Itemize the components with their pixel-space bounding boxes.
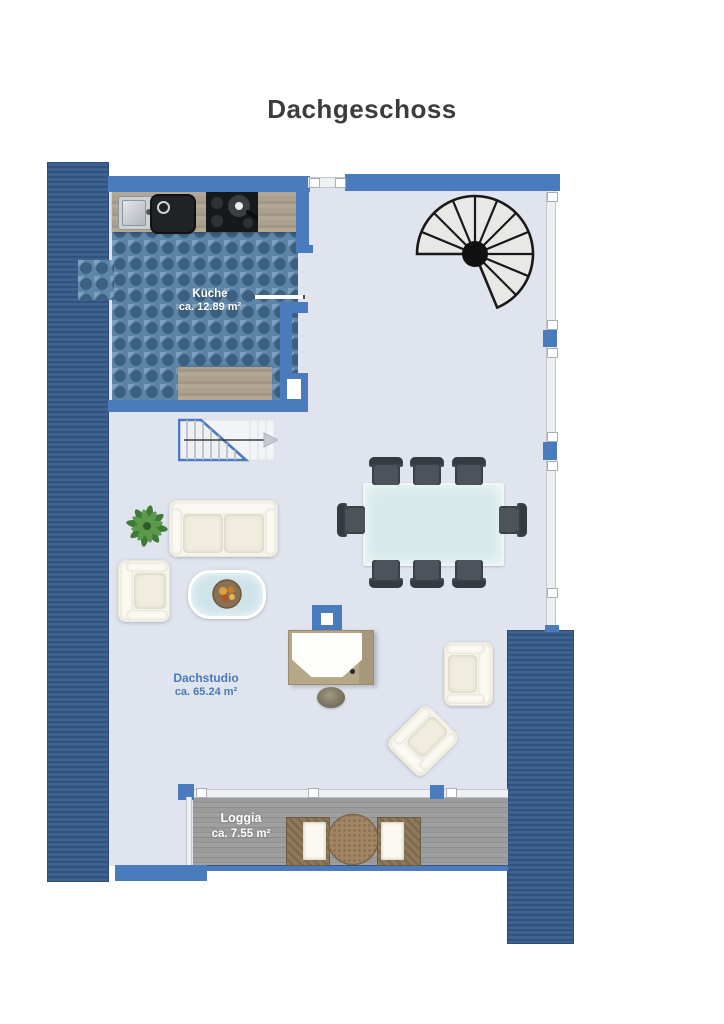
sofa-armrest: [171, 508, 182, 555]
right-wall-stub: [545, 625, 559, 632]
coffee-table: [188, 570, 266, 619]
lounge-chair-armrest: [446, 694, 485, 704]
oven-knob: [157, 201, 170, 214]
kitchen-tile-niche: [78, 260, 114, 300]
lounge-chair: [444, 642, 493, 706]
bottom-left-wall: [115, 865, 207, 881]
kueche-label: Küche ca. 12.89 m²: [150, 287, 270, 315]
potted-plant: [124, 502, 170, 550]
dining-chair: [410, 457, 444, 485]
kueche-name: Küche: [150, 287, 270, 301]
desk: [288, 630, 374, 685]
sofa-cushion: [224, 514, 264, 553]
spiral-staircase: [413, 194, 537, 318]
dachstudio-area: ca. 65.24 m²: [145, 686, 267, 700]
patio-chair-cushion: [381, 822, 404, 860]
dachstudio-label: Dachstudio ca. 65.24 m²: [145, 671, 267, 700]
window-handle: [335, 178, 346, 188]
chimney-flue: [287, 379, 301, 399]
window-handle: [309, 178, 320, 188]
sofa-armrest: [265, 508, 276, 555]
kitchen-stove: [206, 192, 258, 232]
patio-table: [327, 813, 379, 866]
dining-chair: [499, 503, 527, 537]
door-handle: [446, 788, 457, 798]
kueche-area: ca. 12.89 m²: [150, 301, 270, 315]
loggia-area: ca. 7.55 m²: [181, 827, 301, 841]
dining-chair: [369, 457, 403, 485]
patio-chair-cushion: [303, 822, 326, 860]
dachstudio-name: Dachstudio: [145, 671, 267, 686]
page-title: Dachgeschoss: [0, 94, 724, 125]
armchair: [118, 560, 170, 622]
chimney-shaft: [281, 373, 308, 403]
door-handle: [308, 788, 319, 798]
top-wall-kitchen: [108, 176, 310, 192]
loggia-glass-post: [430, 785, 444, 799]
patio-chair-right: [377, 817, 421, 866]
kitchen-wall-upper: [296, 190, 309, 252]
lounge-chair-cushion: [448, 655, 477, 693]
staircase: [178, 418, 278, 462]
desk-chair: [317, 687, 345, 708]
window-mullion: [543, 442, 557, 460]
window-handle: [547, 348, 558, 358]
sofa: [169, 500, 278, 557]
sink-basin: [122, 200, 146, 226]
lounge-chair-armrest: [446, 644, 485, 654]
right-window-wall: [546, 191, 556, 631]
top-wall-main: [345, 174, 560, 191]
kitchen-oven: [150, 194, 196, 234]
door-handle: [196, 788, 207, 798]
roof-slope-right: [508, 631, 573, 943]
dining-chair: [452, 560, 486, 588]
armchair-cushion: [134, 573, 166, 609]
loggia-name: Loggia: [181, 811, 301, 827]
dining-table: [363, 483, 504, 566]
dining-chair: [452, 457, 486, 485]
dining-chair: [337, 503, 365, 537]
support-column: [312, 605, 342, 633]
window-handle: [547, 432, 558, 442]
floor-plan: Dachgeschoss: [0, 0, 724, 1024]
dining-chair: [369, 560, 403, 588]
sofa-cushion: [183, 514, 223, 553]
window-handle: [547, 588, 558, 598]
armchair-armrest: [126, 610, 168, 620]
window-mullion: [543, 330, 557, 347]
support-column-core: [321, 613, 333, 625]
armchair-armrest: [126, 562, 168, 572]
dining-chair: [410, 560, 444, 588]
spiral-staircase-post: [462, 241, 488, 267]
loggia-glass-front: [192, 789, 508, 798]
desk-accessory: [350, 669, 355, 674]
kitchen-wall-stub: [296, 245, 313, 253]
window-handle: [547, 461, 558, 471]
window-handle: [547, 320, 558, 330]
loggia-label: Loggia ca. 7.55 m²: [181, 811, 301, 841]
window-handle: [547, 192, 558, 202]
kitchen-island-counter: [178, 367, 272, 400]
kitchen-wall-bottom: [108, 400, 308, 412]
fruit-bowl: [212, 579, 242, 609]
